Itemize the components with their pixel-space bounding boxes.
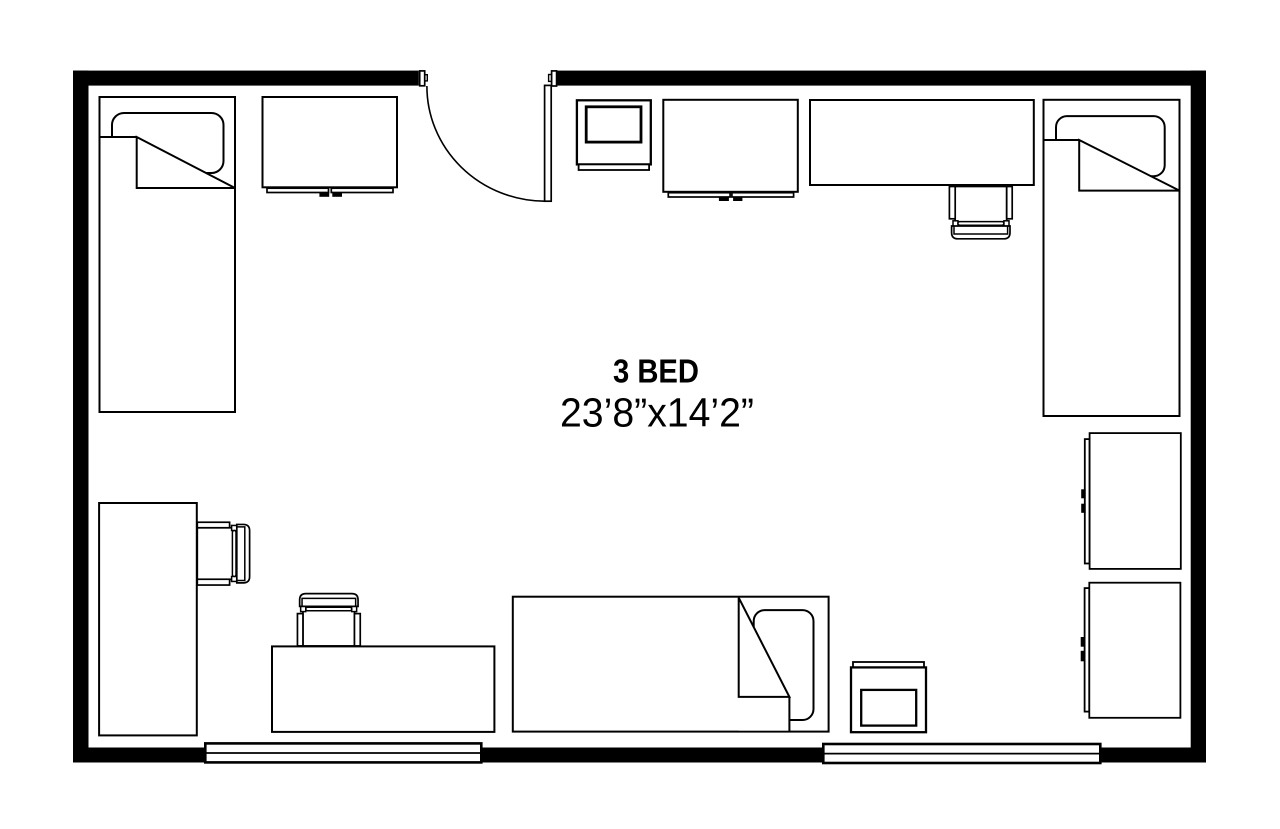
svg-text:3 BED: 3 BED [613, 354, 699, 391]
svg-text:23’8”x14’2”: 23’8”x14’2” [560, 389, 754, 435]
